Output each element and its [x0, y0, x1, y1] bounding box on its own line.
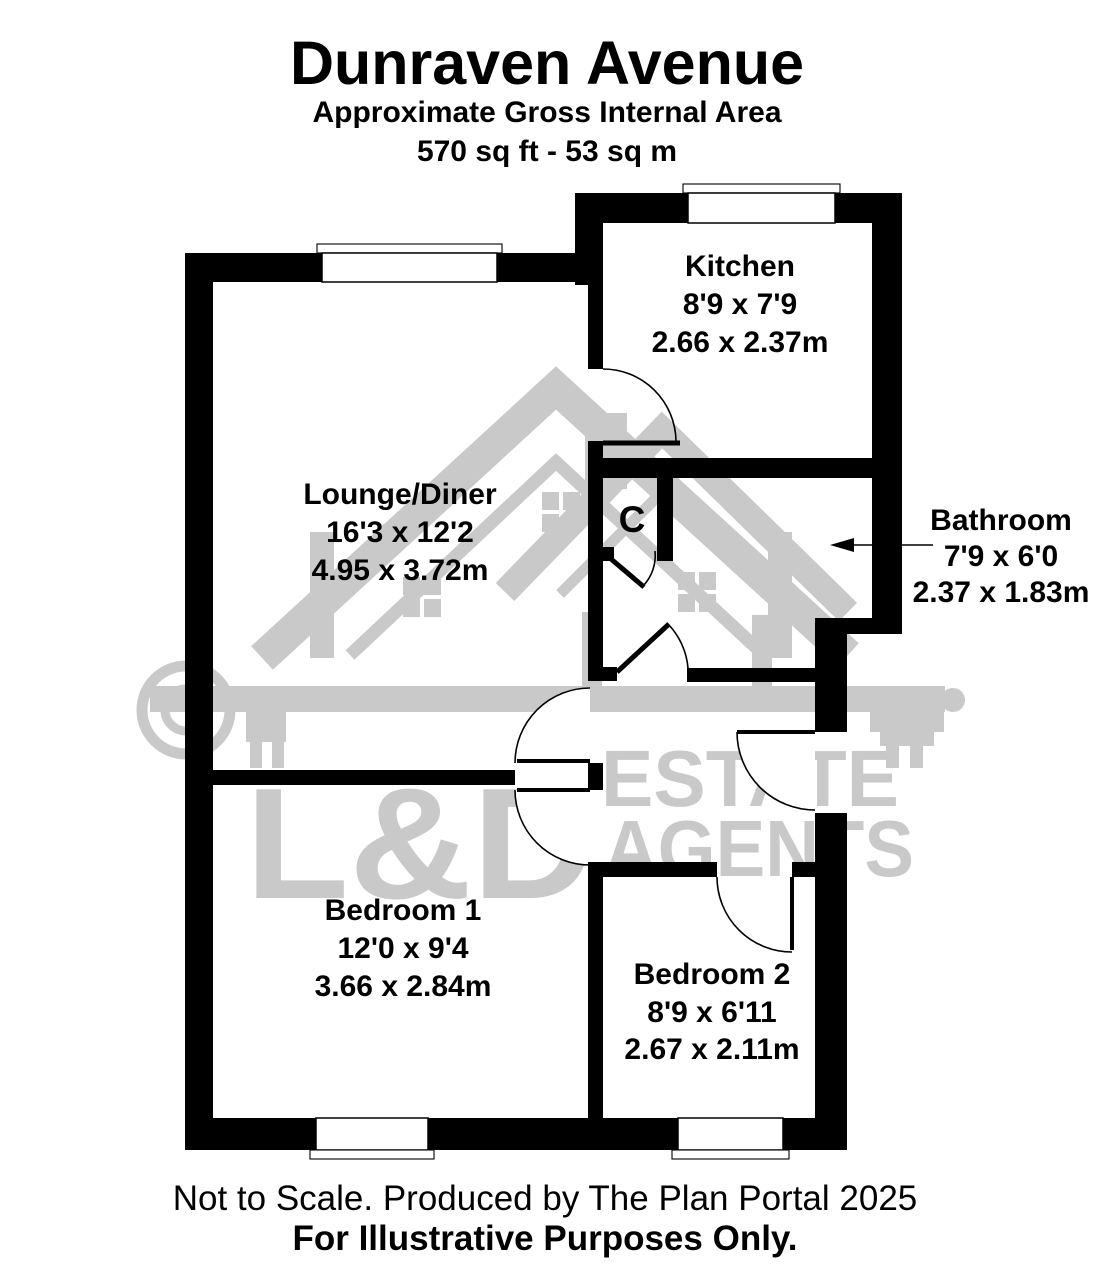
bedroom1-size-imperial: 12'0 x 9'4	[337, 932, 468, 965]
wall-right-outer-mid	[815, 618, 847, 732]
bathroom-door-leaf	[617, 624, 669, 672]
bedroom2-label: Bedroom 2	[634, 958, 791, 991]
wall-bottom-left	[185, 1118, 316, 1150]
room-labels: Kitchen 8'9 x 7'9 2.66 x 2.37m Lounge/Di…	[303, 250, 1089, 1066]
bedroom1-size-metric: 3.66 x 2.84m	[315, 970, 492, 1003]
wall-lounge-bedroom1-divider	[185, 770, 515, 785]
watermark-key-tooth	[910, 746, 923, 768]
floorplan-page: L&D ESTATE AGENTS	[0, 0, 1118, 1280]
wall-doorframe-bathroom	[588, 667, 617, 681]
bedroom2-window-sill	[672, 1150, 789, 1159]
bedroom2-window	[678, 1118, 783, 1150]
wall-bathroom-south	[687, 668, 815, 682]
bedroom1-label: Bedroom 1	[325, 894, 482, 927]
kitchen-label: Kitchen	[685, 250, 795, 283]
cupboard-door-leaf	[611, 559, 644, 587]
wall-kitchen-left	[588, 223, 603, 369]
watermark-key-tip-icon	[941, 688, 965, 712]
watermark-key-bit-left-icon	[246, 712, 286, 742]
wall-bedroom-divider	[588, 862, 603, 1118]
kitchen-size-imperial: 8'9 x 7'9	[683, 288, 797, 321]
kitchen-window	[688, 193, 835, 223]
bathroom-size-imperial: 7'9 x 6'0	[944, 540, 1058, 573]
bathroom-arrow-icon	[830, 538, 854, 552]
wall-lounge-top-left	[185, 253, 322, 282]
bathroom-label: Bathroom	[930, 504, 1072, 537]
wall-right-outer-upper	[872, 193, 902, 634]
bedroom1-window	[316, 1118, 428, 1150]
footer-disclaimer: Not to Scale. Produced by The Plan Porta…	[173, 1179, 918, 1218]
wall-doorframe-cupboard	[588, 547, 614, 561]
footer: Not to Scale. Produced by The Plan Porta…	[173, 1179, 918, 1258]
wall-bottom-middle	[428, 1118, 678, 1150]
wall-left-outer	[185, 253, 213, 1150]
kitchen-window-sill	[683, 184, 840, 193]
wall-cupboard-right	[657, 478, 673, 561]
wall-right-outer-lower	[815, 813, 847, 1150]
lounge-window	[322, 253, 497, 282]
watermark-key-bit-right-icon	[870, 690, 944, 732]
wall-bedroom2-top-left	[588, 862, 717, 877]
watermark-house-wall-left	[310, 532, 334, 658]
bedroom2-door-swing	[717, 877, 792, 952]
bedroom1-window-sill	[310, 1150, 434, 1159]
page-title: Dunraven Avenue	[290, 29, 804, 97]
wall-bottom-right	[783, 1118, 847, 1150]
page-area: 570 sq ft - 53 sq m	[417, 135, 677, 168]
wall-kitchen-bottom	[588, 458, 872, 478]
wall-hinge-block	[588, 763, 603, 790]
floor-plan-svg: L&D ESTATE AGENTS	[0, 0, 1118, 1280]
lounge-label: Lounge/Diner	[303, 478, 497, 511]
kitchen-size-metric: 2.66 x 2.37m	[652, 326, 829, 359]
wall-bedroom2-top-right	[792, 862, 817, 877]
bedroom2-size-imperial: 8'9 x 6'11	[647, 996, 776, 1029]
footer-illustrative: For Illustrative Purposes Only.	[292, 1219, 797, 1258]
bedroom2-size-metric: 2.67 x 2.11m	[624, 1033, 799, 1066]
bathroom-size-metric: 2.37 x 1.83m	[913, 576, 1090, 609]
bathroom-door-arc	[668, 624, 688, 668]
header: Dunraven Avenue Approximate Gross Intern…	[290, 29, 804, 168]
page-subtitle: Approximate Gross Internal Area	[312, 96, 781, 129]
lounge-size-imperial: 16'3 x 12'2	[326, 516, 474, 549]
lounge-window-sill	[317, 244, 502, 253]
cupboard-label: C	[619, 499, 646, 540]
lounge-size-metric: 4.95 x 3.72m	[312, 554, 489, 587]
